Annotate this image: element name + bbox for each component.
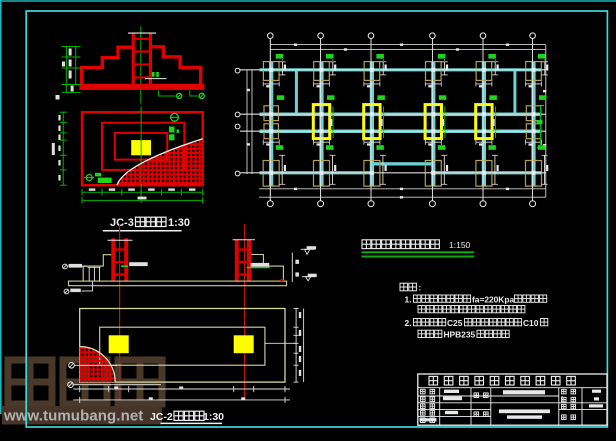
svg-text:HPB235: HPB235	[444, 330, 476, 340]
svg-text:1:30: 1:30	[203, 411, 224, 423]
svg-text:fa=220Kpa: fa=220Kpa	[472, 294, 514, 304]
svg-text:JC-2: JC-2	[150, 411, 173, 423]
svg-text:1.: 1.	[405, 294, 412, 304]
svg-text:1:150: 1:150	[449, 240, 471, 250]
svg-text:JC-3: JC-3	[110, 217, 134, 229]
svg-text:C25: C25	[447, 318, 463, 328]
svg-text:1:30: 1:30	[168, 217, 190, 229]
svg-text:www.tumubang.net: www.tumubang.net	[3, 408, 143, 425]
svg-text:2.: 2.	[405, 318, 412, 328]
svg-text::: :	[419, 284, 422, 293]
svg-text:C10: C10	[523, 318, 539, 328]
